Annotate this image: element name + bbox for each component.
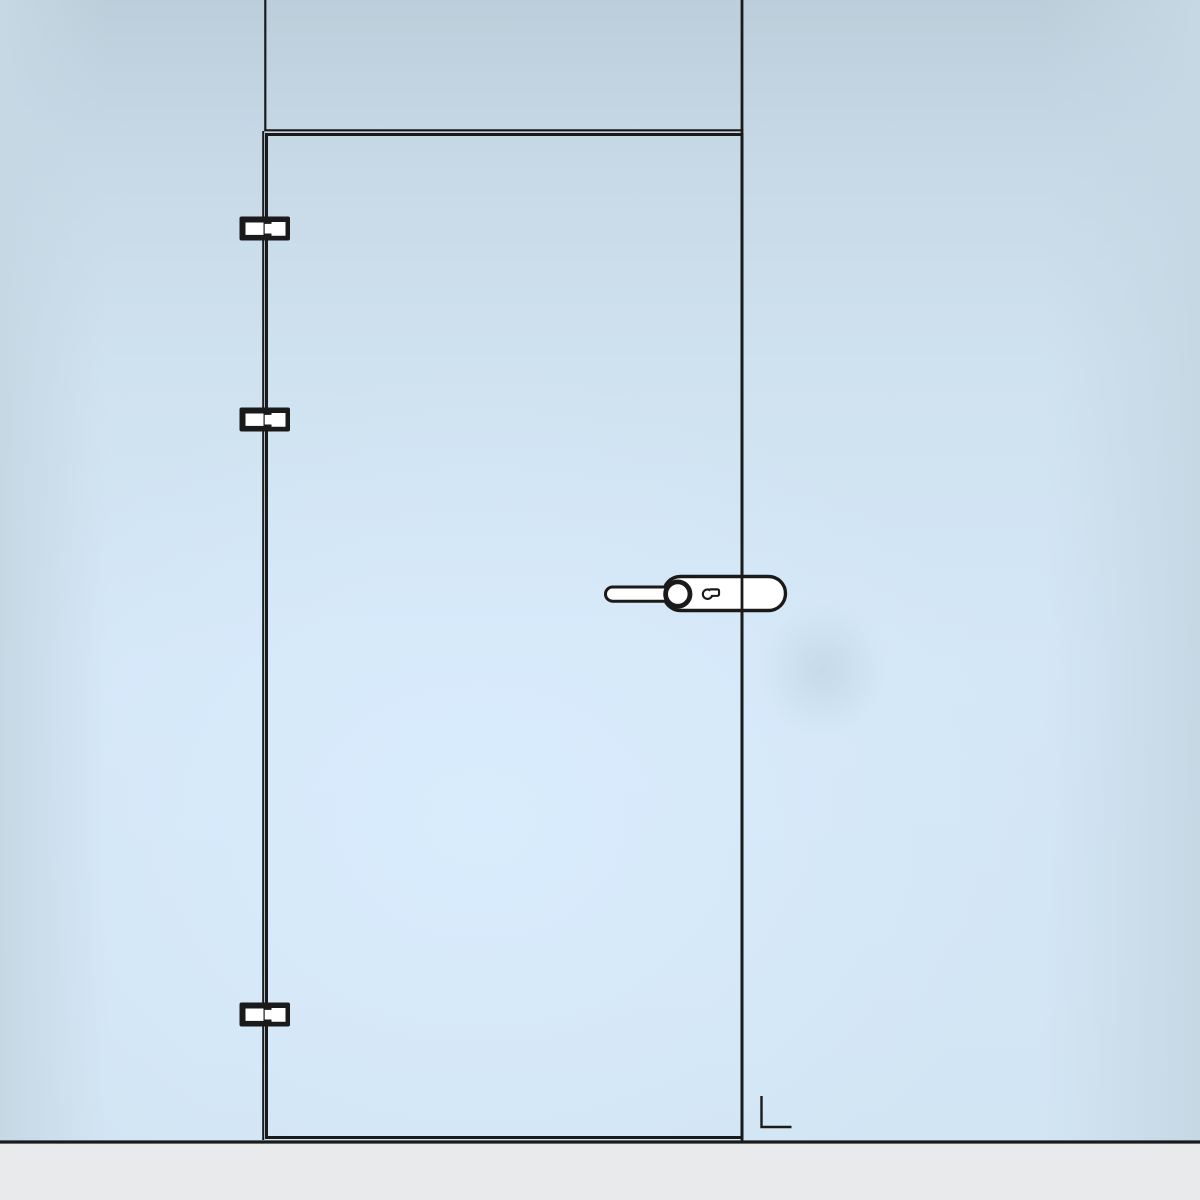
keyhole-tab-fill — [710, 591, 718, 595]
door-leaf-outline — [267, 135, 743, 1138]
door-line-drawing — [0, 0, 1200, 1200]
transom-panel — [264, 0, 743, 130]
floor-corner-marker — [762, 1096, 792, 1127]
lever-handle-pivot — [666, 582, 690, 606]
hinge-middle — [240, 408, 291, 432]
hinge-top — [240, 217, 291, 241]
glass-door-illustration — [0, 0, 1200, 1200]
door-handle — [606, 577, 786, 611]
hinge-bottom — [240, 1003, 291, 1027]
